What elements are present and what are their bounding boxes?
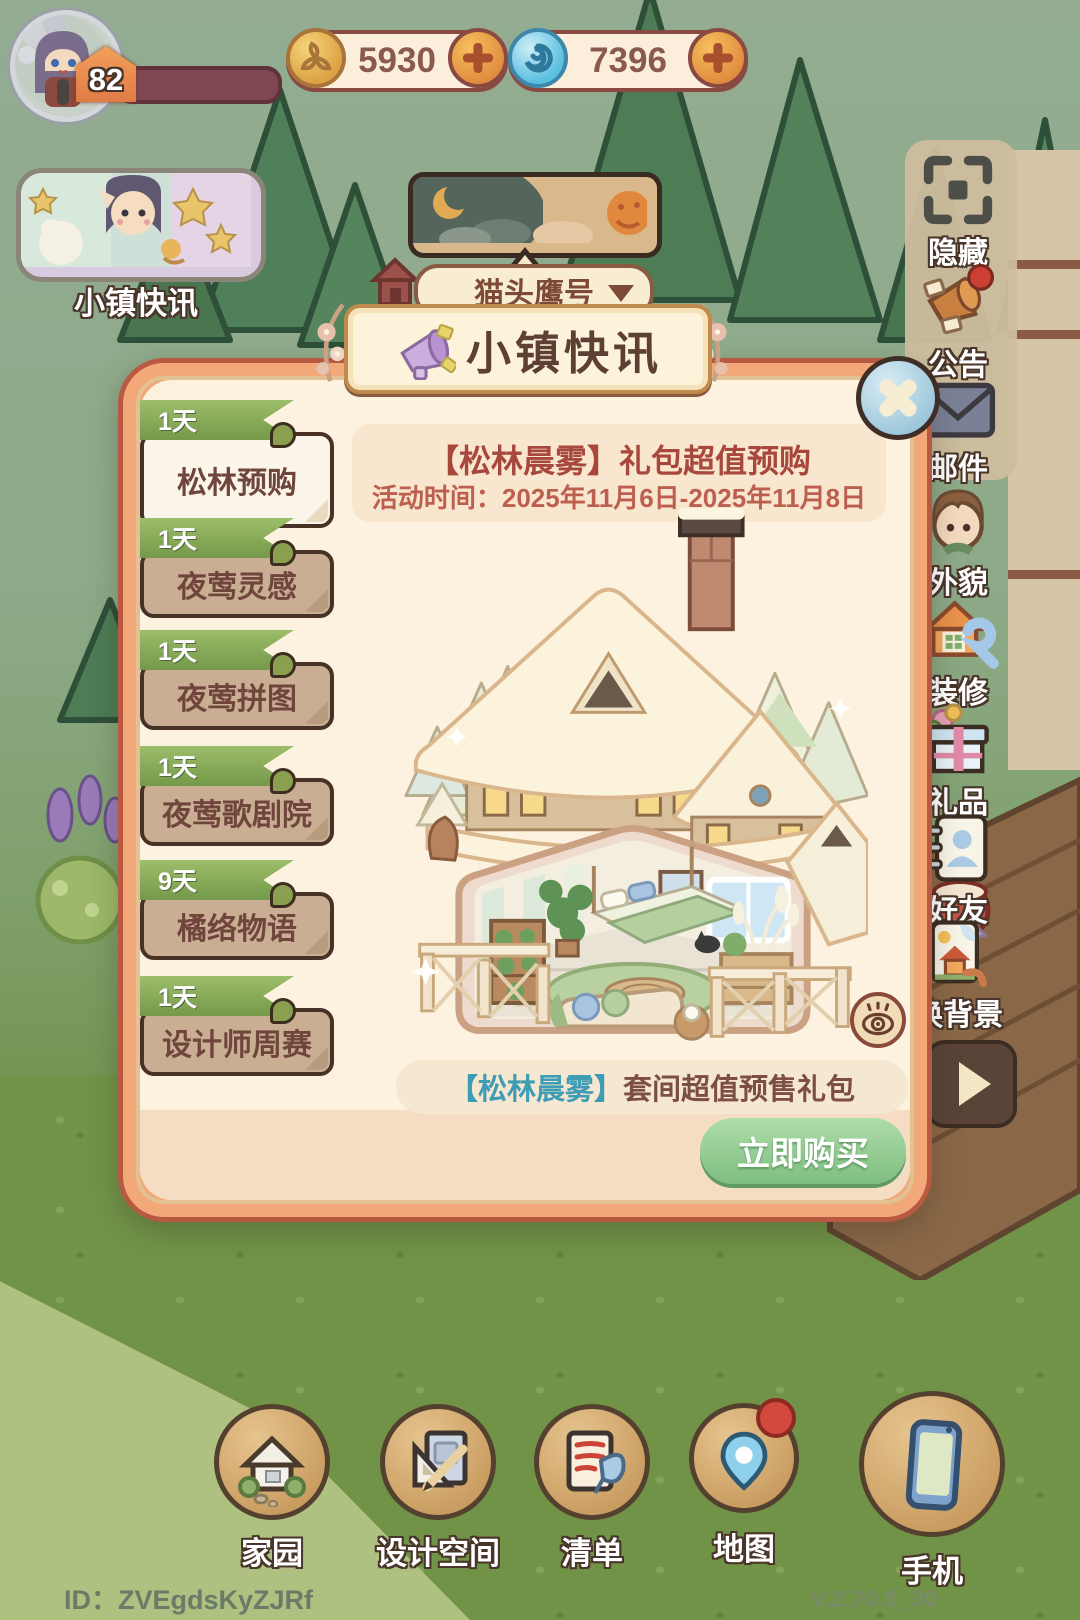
map-notification-badge [756,1398,796,1438]
aqua-orb-icon [508,28,568,88]
player-level-badge: 82 [76,46,136,102]
sidebar-item-hide[interactable]: 隐藏 [900,148,1016,272]
event-label: 设计师周赛 [162,1020,312,1064]
package-caption: 【松林晨雾】 套间超值预售礼包 [396,1060,908,1114]
event-days: 1天 [140,978,197,1014]
event-days: 1天 [140,632,197,668]
home-icon [227,1417,317,1507]
dialog-title-banner: 小镇快讯 [344,304,712,394]
player-id-text: ID：ZVEgdsKyZJRf [64,1578,313,1617]
package-house-illustration [398,502,868,1050]
day-night-art [413,177,647,243]
dialog-title: 小镇快讯 [466,317,662,382]
event-item[interactable]: 夜莺灵感 [140,550,334,618]
leaf-pin-icon [270,422,296,448]
event-days: 9天 [140,862,197,898]
event-item[interactable]: 设计师周赛 [140,1008,334,1076]
event-label: 松林预购 [177,458,297,502]
player-level: 82 [89,58,123,102]
megaphone-icon [394,318,456,380]
event-label: 夜莺歌剧院 [162,790,312,834]
buy-now-button[interactable]: 立即购买 [700,1118,906,1184]
nav-checklist-button[interactable] [534,1404,650,1520]
game-screen: 82 5930 7396 [0,0,1080,1620]
nav-design-space-button[interactable] [380,1404,496,1520]
leaf-currency-value: 5930 [348,34,446,88]
leaf-pin-icon [270,768,296,794]
event-label: 橘络物语 [177,904,297,948]
news-shortcut-label: 小镇快讯 [16,278,256,323]
preview-eye-button[interactable] [850,992,906,1048]
currency-leaf: 5930 [286,30,508,92]
nav-phone-button[interactable] [859,1391,1005,1537]
version-text: V.2.70.0_30 [744,1586,1004,1614]
close-dialog-button[interactable] [856,356,940,440]
add-aqua-currency-button[interactable] [688,28,748,88]
leaf-pin-icon [270,998,296,1024]
aqua-currency-value: 7396 [570,34,686,88]
news-banner-art [21,173,251,267]
event-label: 夜莺拼图 [177,674,297,718]
leaf-coin-icon [286,28,346,88]
sidebar-expand-button[interactable] [925,1040,1017,1128]
leaf-pin-icon [270,540,296,566]
background-building [1008,150,1080,770]
package-description: 套间超值预售礼包 [623,1066,855,1108]
eye-icon [856,1000,900,1040]
phone-icon [877,1409,987,1519]
leaf-pin-icon [270,652,296,678]
event-title: 【松林晨雾】礼包超值预购 [352,436,886,482]
currency-aqua: 7396 [508,30,748,92]
xp-progress-bar [116,66,282,104]
package-name: 【松林晨雾】 [449,1066,623,1108]
buy-now-label: 立即购买 [737,1127,869,1175]
news-shortcut-banner[interactable] [16,168,266,282]
event-item[interactable]: 橘络物语 [140,892,334,960]
announcement-icon [915,258,1001,344]
event-item[interactable]: 夜莺拼图 [140,662,334,730]
checklist-icon [547,1417,637,1507]
event-item[interactable]: 夜莺歌剧院 [140,778,334,846]
event-days: 1天 [140,402,197,438]
play-arrow-icon [959,1062,991,1106]
leaf-pin-icon [270,882,296,908]
event-label: 夜莺灵感 [177,562,297,606]
event-days: 1天 [140,748,197,784]
design-space-icon [393,1417,483,1507]
event-item-selected[interactable]: 松林预购 [140,432,334,528]
event-days: 1天 [140,520,197,556]
add-leaf-currency-button[interactable] [448,28,508,88]
hide-icon [916,148,1000,232]
nav-map-label: 地图 [644,1524,844,1569]
dropdown-caret-icon [608,285,634,302]
nav-home-button[interactable] [214,1404,330,1520]
nav-phone-label: 手机 [832,1546,1032,1591]
day-night-bar [408,172,662,258]
